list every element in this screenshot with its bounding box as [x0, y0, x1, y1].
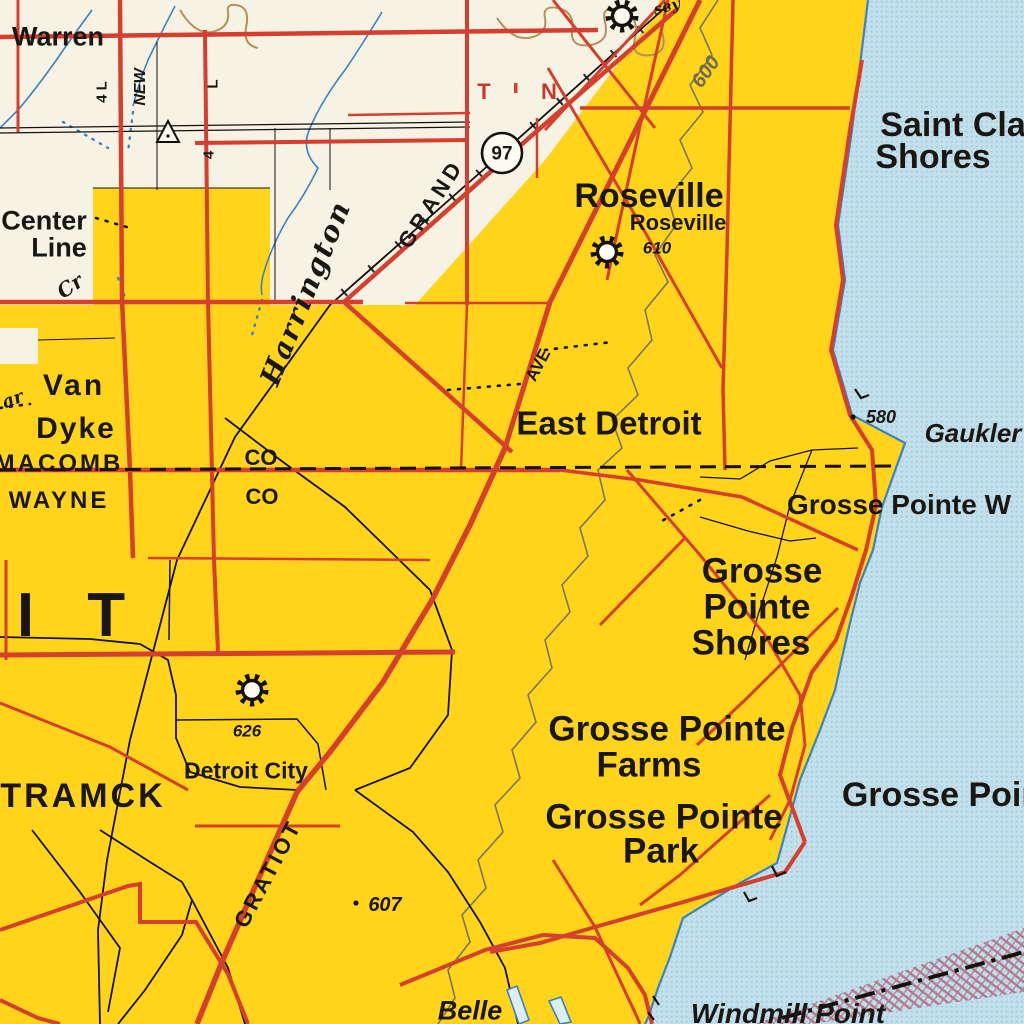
county-label-wayne: WAYNE	[9, 489, 110, 513]
county-label-macomb: MACOMB	[0, 452, 123, 476]
place-label-hamtramck-fragment: TRAMCK	[0, 779, 165, 813]
place-label-gp-shores-1: Grosse	[702, 554, 823, 589]
place-label-dyke: Dyke	[36, 414, 116, 444]
elevation-label-610: 610	[643, 240, 671, 257]
township-letter-t: T	[477, 81, 490, 103]
place-label-gp-shores-3: Shores	[692, 626, 811, 661]
place-label-detroit-big: I T	[17, 585, 143, 647]
place-label-roseville-small: Roseville	[630, 212, 727, 234]
place-label-windmill-point: Windmill Point	[691, 1000, 885, 1024]
place-label-warren: Warren	[12, 24, 104, 51]
county-label-co-upper: CO	[245, 447, 278, 469]
place-label-van: Van	[43, 371, 105, 401]
route-97-number: 97	[491, 145, 512, 164]
place-label-detroit-city: Detroit City	[184, 760, 308, 783]
place-label-gp-farms-2: Farms	[596, 748, 701, 783]
elevation-label-607: 607	[368, 895, 401, 915]
elevation-label-626: 626	[233, 723, 261, 740]
place-label-gp-farms-1: Grosse Pointe	[548, 712, 785, 747]
road-label-4: 4	[202, 151, 217, 159]
place-label-gp-shores-2: Pointe	[704, 590, 811, 625]
place-label-gp-park-2: Park	[623, 834, 699, 869]
place-label-saint-clair-1: Saint Cla	[880, 108, 1024, 142]
map-canvas: Warren 4 L NEW L 4 Center Line Cr T N 97…	[0, 0, 1024, 1024]
place-label-east-detroit: East Detroit	[516, 407, 701, 440]
place-label-center-line-2: Line	[31, 235, 87, 262]
road-label-4l: 4 L	[95, 81, 110, 103]
township-letter-n: N	[541, 81, 557, 103]
place-label-grosse-pointe-woods: Grosse Pointe W	[787, 491, 1011, 519]
road-label-new: NEW	[133, 68, 149, 105]
place-label-gp-park-1: Grosse Pointe	[545, 800, 782, 835]
place-label-saint-clair-2: Shores	[875, 140, 990, 174]
place-label-roseville: Roseville	[574, 179, 723, 213]
county-label-co-lower: CO	[246, 486, 279, 508]
place-label-gaukler: Gaukler	[925, 420, 1022, 446]
place-label-center-line-1: Center	[1, 208, 87, 235]
place-label-grosse-pointe-water: Grosse Poin	[842, 778, 1024, 812]
place-label-belle: Belle	[438, 998, 503, 1024]
road-label-l: L	[206, 79, 221, 88]
elevation-label-580: 580	[866, 408, 896, 426]
